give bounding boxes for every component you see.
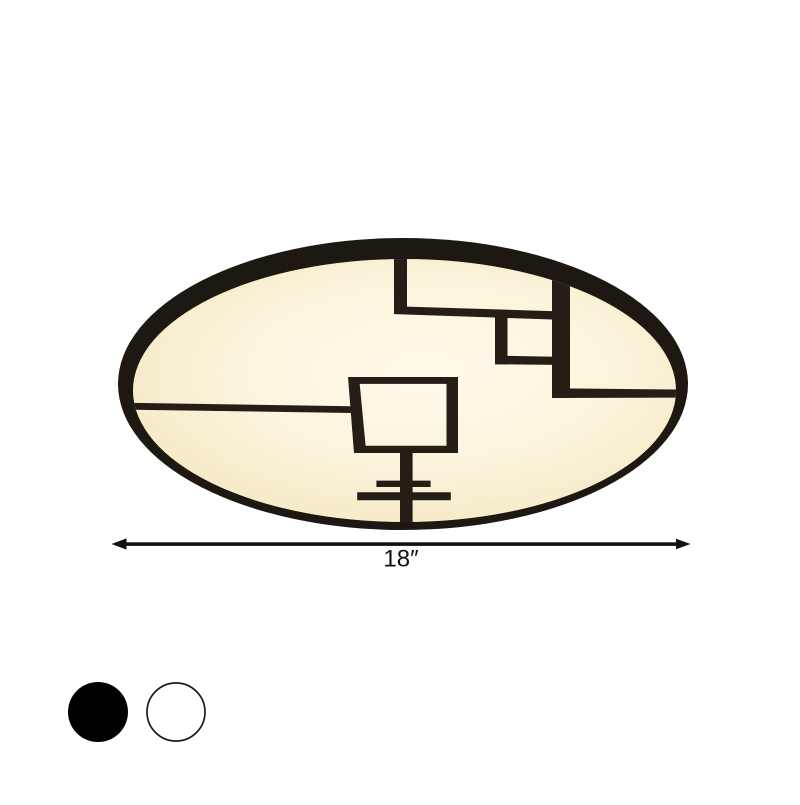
svg-text:18″: 18″ [383,546,419,573]
